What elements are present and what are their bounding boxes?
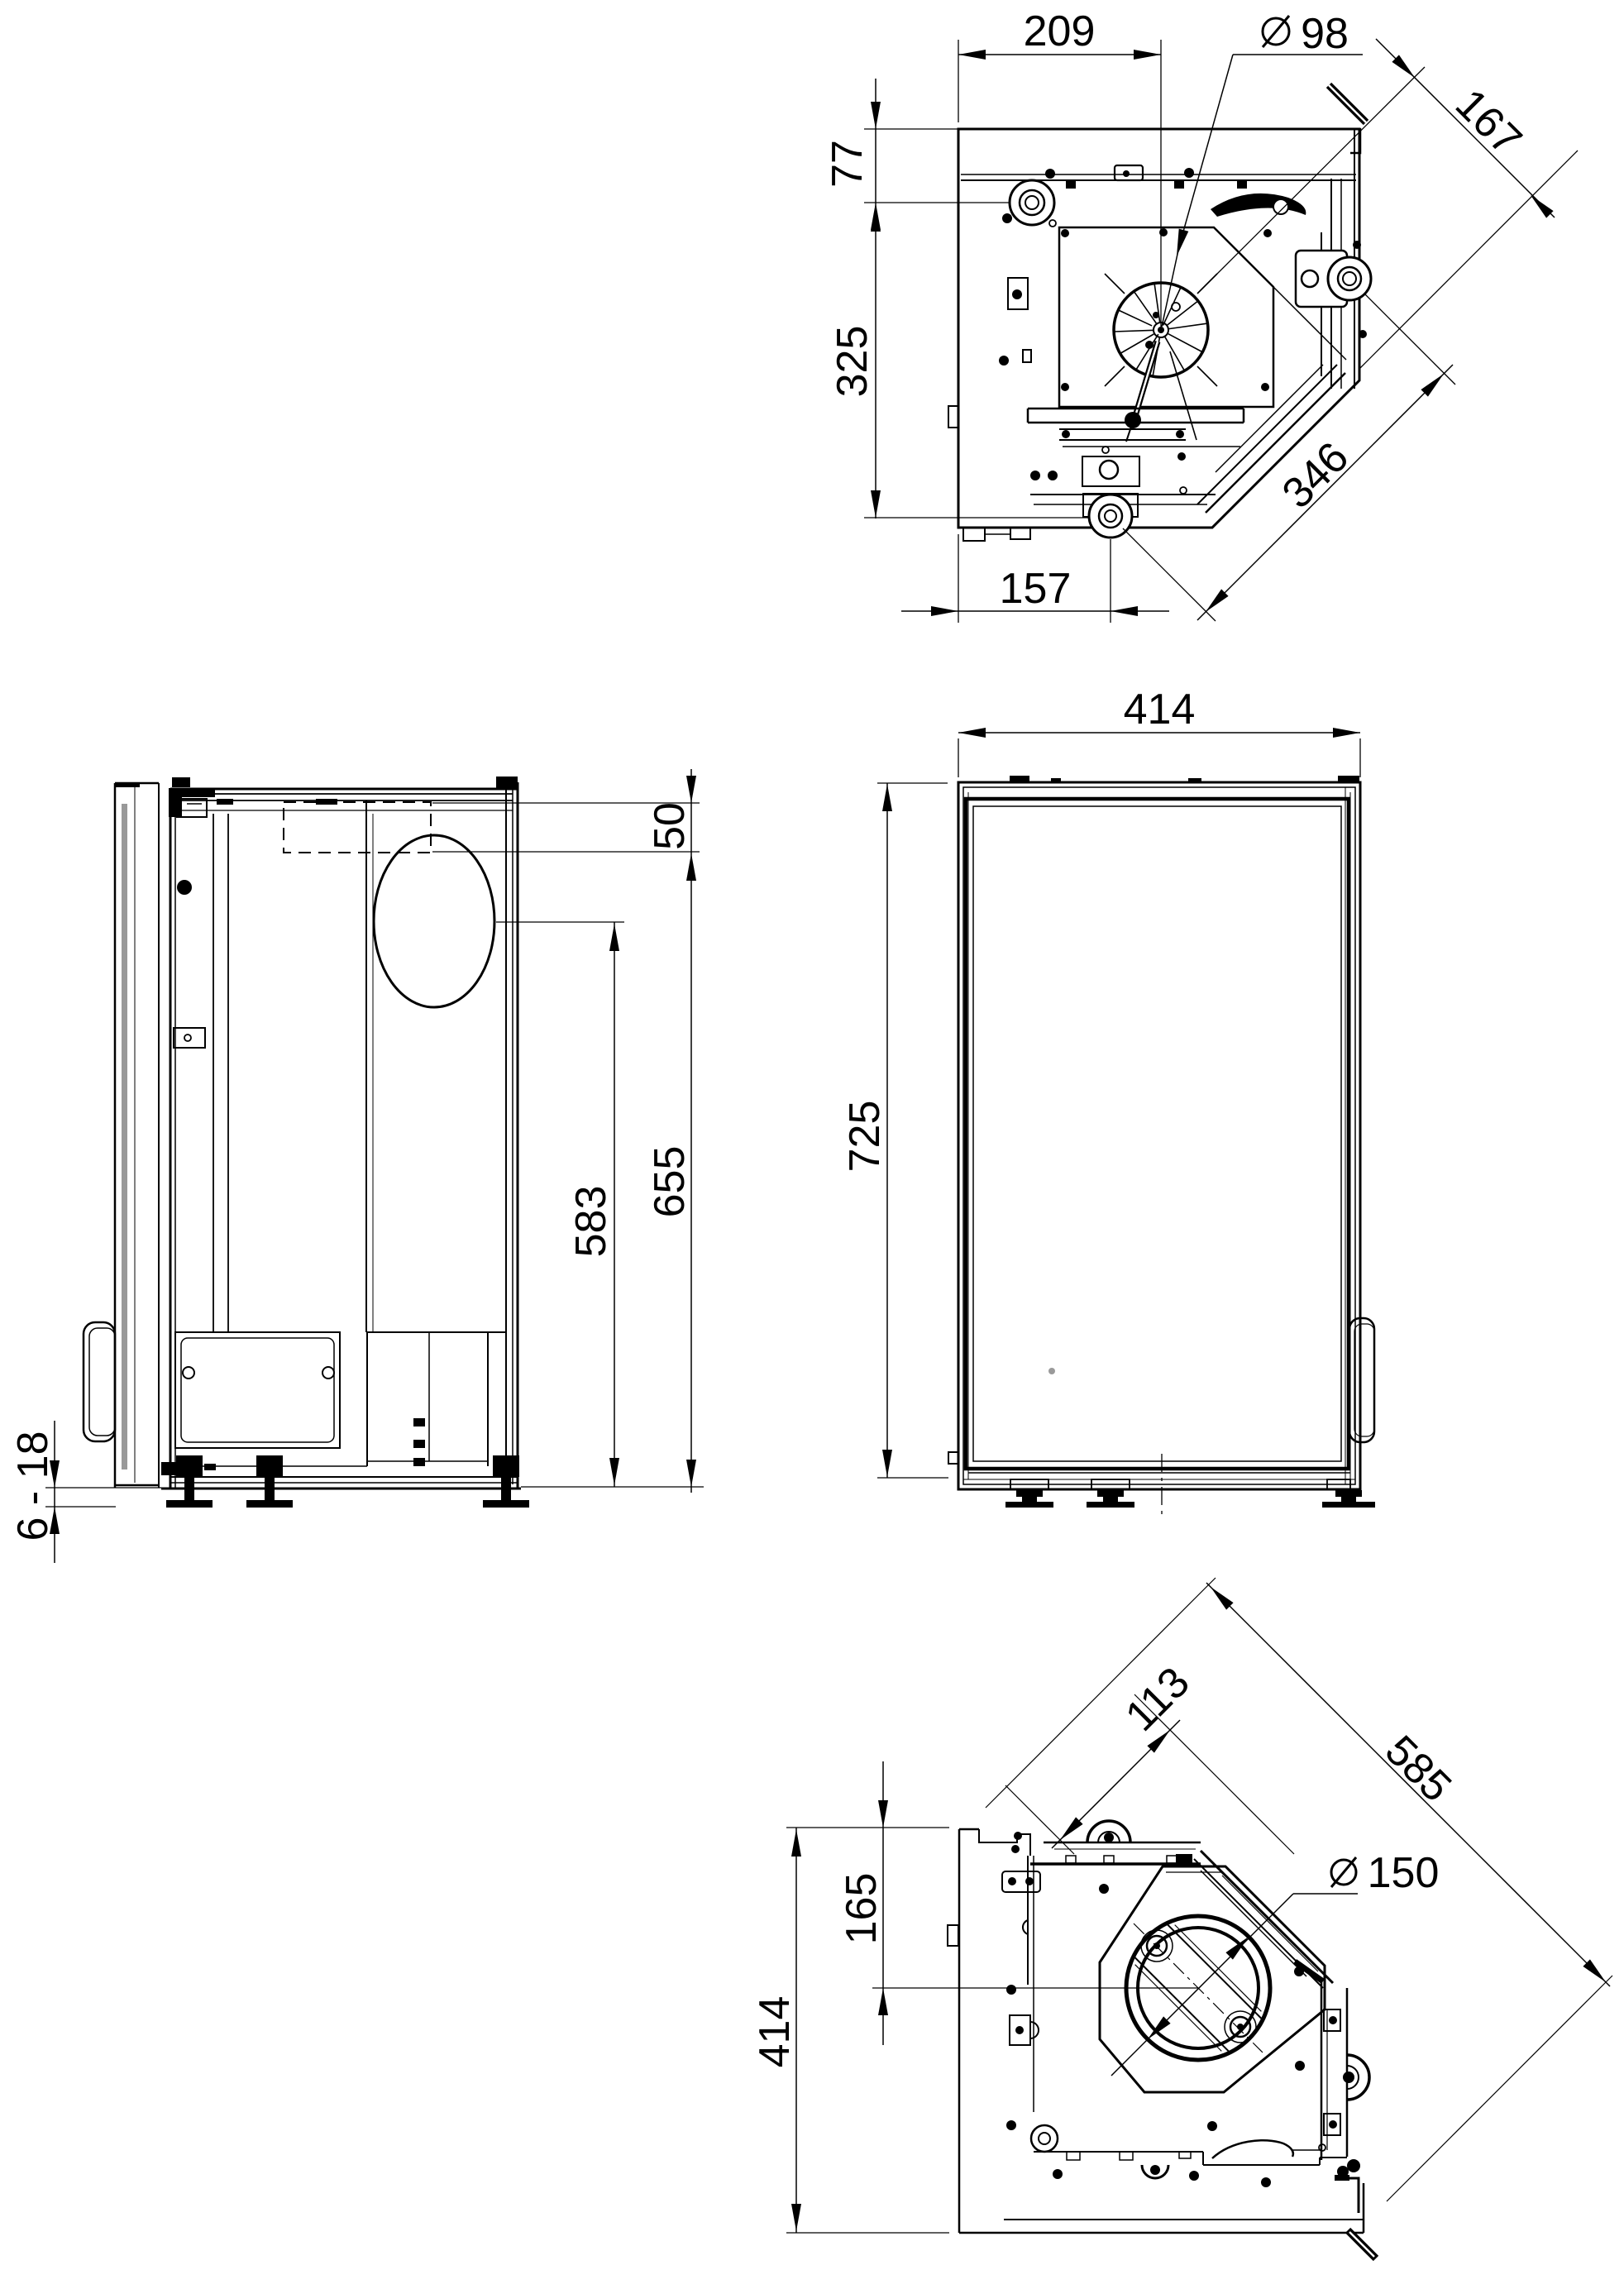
- svg-text:725: 725: [841, 1101, 889, 1173]
- svg-text:209: 209: [1024, 7, 1096, 55]
- svg-text:50: 50: [646, 802, 694, 850]
- svg-text:77: 77: [824, 140, 872, 188]
- svg-text:655: 655: [646, 1146, 694, 1218]
- svg-text:6 - 18: 6 - 18: [9, 1431, 57, 1541]
- svg-text:98: 98: [1301, 10, 1349, 58]
- svg-text:150: 150: [1368, 1849, 1440, 1897]
- svg-text:583: 583: [567, 1186, 615, 1258]
- svg-text:157: 157: [1000, 565, 1072, 613]
- svg-text:325: 325: [829, 326, 876, 398]
- svg-text:165: 165: [838, 1873, 886, 1945]
- svg-text:414: 414: [1124, 686, 1196, 734]
- svg-text:414: 414: [751, 1996, 799, 2068]
